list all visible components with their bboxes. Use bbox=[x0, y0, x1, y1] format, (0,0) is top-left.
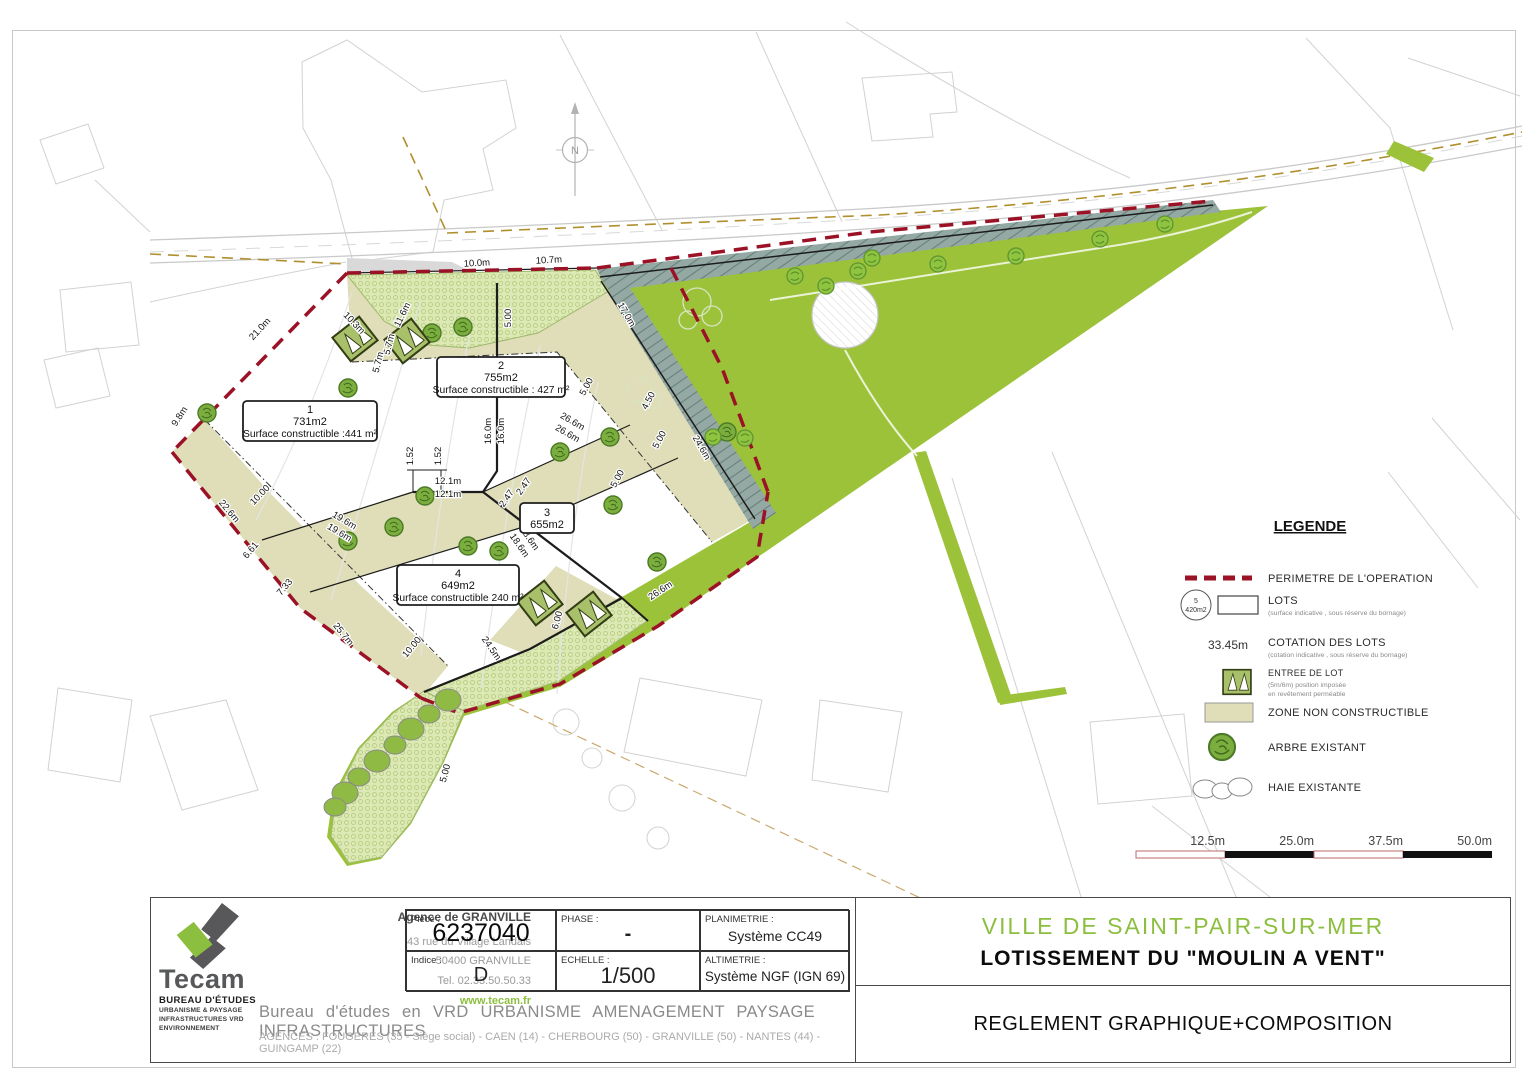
logo-subtitle: BUREAU D'ÉTUDES bbox=[159, 996, 256, 1006]
existing-tree-icon bbox=[490, 542, 508, 560]
existing-tree-icon bbox=[198, 404, 216, 422]
svg-text:Surface constructible : 427 m²: Surface constructible : 427 m² bbox=[433, 385, 570, 396]
field-altimetrie: ALTIMETRIE : Système NGF (IGN 69) bbox=[700, 951, 850, 992]
svg-text:HAIE EXISTANTE: HAIE EXISTANTE bbox=[1268, 782, 1361, 794]
svg-text:PERIMETRE DE L'OPERATION: PERIMETRE DE L'OPERATION bbox=[1268, 573, 1433, 585]
svg-text:ENTREE DE LOT: ENTREE DE LOT bbox=[1268, 668, 1344, 678]
north-arrowhead-icon bbox=[571, 102, 579, 114]
existing-tree-icon bbox=[551, 443, 569, 461]
existing-hedge-icon bbox=[398, 718, 424, 740]
existing-hedge-icon bbox=[418, 705, 440, 723]
svg-text:1: 1 bbox=[307, 404, 313, 416]
existing-tree-icon bbox=[864, 250, 880, 266]
existing-tree-icon bbox=[601, 428, 619, 446]
lot-label-3: 3 655m2 bbox=[520, 503, 574, 533]
lot-label-1: 1 731m2 Surface constructible :441 m² bbox=[243, 401, 378, 441]
svg-text:731m2: 731m2 bbox=[293, 416, 327, 428]
lot-label-4: 4 649m2 Surface constructible 240 m² bbox=[392, 565, 524, 605]
logo-line: URBANISME & PAYSAGE bbox=[159, 1008, 256, 1015]
lot-label-2: 2 755m2 Surface constructible : 427 m² bbox=[433, 357, 570, 397]
svg-text:37.5m: 37.5m bbox=[1368, 834, 1403, 848]
dimension-label: 16.0m bbox=[483, 418, 494, 444]
hedge-legend-icon bbox=[1193, 778, 1252, 799]
existing-tree-icon bbox=[1008, 248, 1024, 264]
existing-tree-icon bbox=[1157, 216, 1173, 232]
svg-text:25.0m: 25.0m bbox=[1279, 834, 1314, 848]
existing-hedge-icon bbox=[384, 736, 406, 754]
company-agencies: AGENCES : FOUGERES (35 - Siège social) -… bbox=[259, 1031, 855, 1055]
title-block-company: Tecam BUREAU D'ÉTUDES URBANISME & PAYSAG… bbox=[151, 898, 856, 1062]
logo-line: ENVIRONNEMENT bbox=[159, 1026, 256, 1033]
svg-text:655m2: 655m2 bbox=[530, 519, 564, 531]
drawing-info-table: Pièce : 6237040 PHASE : - PLANIMETRIE : … bbox=[405, 909, 849, 991]
field-indice: Indice : D bbox=[406, 951, 556, 992]
green-path-strip bbox=[913, 451, 1012, 703]
dimension-label: 21.0m bbox=[247, 316, 273, 343]
dimension-label: 12.1m bbox=[435, 476, 461, 487]
existing-tree-icon bbox=[604, 496, 622, 514]
field-echelle: ECHELLE : 1/500 bbox=[556, 951, 700, 992]
field-planimetrie: PLANIMETRIE : Système CC49 bbox=[700, 910, 850, 951]
lot-badge-icon bbox=[1181, 590, 1211, 620]
logo-line: INFRASTRUCTURES VRD bbox=[159, 1017, 256, 1024]
svg-text:2: 2 bbox=[498, 360, 504, 372]
existing-tree-icon bbox=[416, 487, 434, 505]
scale-bar: 12.5m 25.0m 37.5m 50.0m bbox=[1136, 834, 1492, 858]
logo-name: Tecam bbox=[159, 966, 256, 993]
svg-text:LOTS: LOTS bbox=[1268, 595, 1298, 607]
svg-text:4: 4 bbox=[455, 568, 461, 580]
field-phase: PHASE : - bbox=[556, 910, 700, 951]
existing-hedge-icon bbox=[435, 689, 461, 711]
existing-tree-icon bbox=[1092, 231, 1108, 247]
existing-tree-icon bbox=[339, 379, 357, 397]
existing-tree-icon bbox=[454, 318, 472, 336]
dimension-label: 1.52 bbox=[405, 447, 416, 466]
lot-rect-icon bbox=[1218, 596, 1258, 614]
svg-text:50.0m: 50.0m bbox=[1457, 834, 1492, 848]
legend: LEGENDE PERIMETRE DE L'OPERATION 5 420m2… bbox=[1181, 518, 1433, 799]
existing-tree-icon bbox=[737, 430, 753, 446]
zone-legend-icon bbox=[1205, 703, 1253, 722]
document-title: REGLEMENT GRAPHIQUE+COMPOSITION bbox=[856, 986, 1510, 1062]
svg-text:Surface constructible 240 m²: Surface constructible 240 m² bbox=[392, 593, 524, 604]
svg-text:3: 3 bbox=[544, 507, 550, 519]
existing-tree-icon bbox=[385, 518, 403, 536]
field-piece: Pièce : 6237040 bbox=[406, 910, 556, 951]
project-city: VILLE DE SAINT-PAIR-SUR-MER bbox=[982, 913, 1384, 940]
svg-text:5: 5 bbox=[1194, 598, 1198, 605]
svg-text:(cotation indicative , sous ré: (cotation indicative , sous réserve du b… bbox=[1268, 652, 1407, 659]
title-block-project: VILLE DE SAINT-PAIR-SUR-MER LOTISSEMENT … bbox=[856, 898, 1510, 1062]
existing-tree-icon bbox=[459, 537, 477, 555]
legend-title: LEGENDE bbox=[1274, 518, 1347, 535]
existing-tree-icon bbox=[818, 278, 834, 294]
svg-text:Surface constructible :441 m²: Surface constructible :441 m² bbox=[243, 429, 377, 440]
tecam-logo-icon bbox=[165, 903, 245, 969]
svg-text:12.5m: 12.5m bbox=[1190, 834, 1225, 848]
svg-text:755m2: 755m2 bbox=[484, 372, 518, 384]
dimension-label: 16.0m bbox=[496, 418, 507, 444]
existing-tree-icon bbox=[705, 429, 721, 445]
tree-legend-icon bbox=[1209, 734, 1235, 760]
title-block: Tecam BUREAU D'ÉTUDES URBANISME & PAYSAG… bbox=[150, 897, 1511, 1063]
svg-text:N: N bbox=[571, 145, 579, 157]
existing-hedge-icon bbox=[324, 798, 346, 816]
existing-tree-icon bbox=[787, 268, 803, 284]
dimension-label: 5.00 bbox=[503, 309, 514, 328]
svg-text:(5m/6m) position imposée: (5m/6m) position imposée bbox=[1268, 682, 1346, 689]
svg-text:420m2: 420m2 bbox=[1185, 607, 1207, 614]
existing-tree-icon bbox=[930, 256, 946, 272]
svg-text:(surface indicative , sous rés: (surface indicative , sous réserve du bo… bbox=[1268, 610, 1406, 617]
dimension-label: 1.52 bbox=[433, 447, 444, 466]
project-name: LOTISSEMENT DU "MOULIN A VENT" bbox=[980, 947, 1385, 971]
dimension-label: 9.8m bbox=[170, 405, 191, 429]
north-arrow: N bbox=[556, 102, 594, 196]
cotation-sample: 33.45m bbox=[1208, 638, 1248, 652]
existing-tree-icon bbox=[850, 263, 866, 279]
green-patch-ne bbox=[1386, 141, 1434, 172]
dimension-label: 12.1m bbox=[435, 489, 461, 500]
svg-text:en revêtement perméable: en revêtement perméable bbox=[1268, 691, 1346, 698]
svg-text:COTATION DES LOTS: COTATION DES LOTS bbox=[1268, 637, 1386, 649]
dimension-label: 10.7m bbox=[535, 254, 562, 266]
svg-text:ZONE NON CONSTRUCTIBLE: ZONE NON CONSTRUCTIBLE bbox=[1268, 707, 1429, 719]
svg-text:649m2: 649m2 bbox=[441, 580, 475, 592]
entrance-legend-icon bbox=[1223, 670, 1251, 695]
existing-tree-icon bbox=[648, 553, 666, 571]
svg-text:ARBRE EXISTANT: ARBRE EXISTANT bbox=[1268, 742, 1366, 754]
existing-hedge-icon bbox=[364, 750, 390, 772]
dimension-label: 10.0m bbox=[463, 257, 490, 269]
